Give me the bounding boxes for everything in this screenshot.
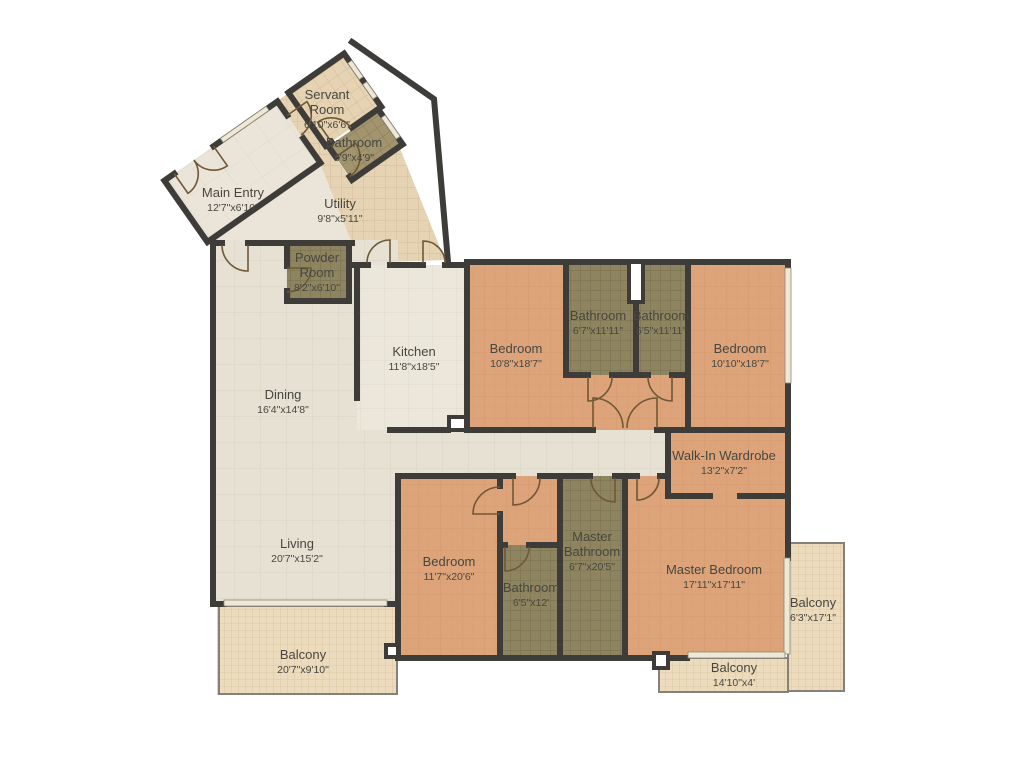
window-bedroom-2 (785, 268, 791, 383)
room-label-balcony-bottom: Balcony14'10"x4' (711, 660, 758, 689)
floor-plan-svg: ServantRoom6'10"x6'6"Bathroom6'9"x4'9"Ma… (0, 0, 1024, 768)
room-label-servant-room: ServantRoom6'10"x6'6" (304, 87, 350, 131)
room-label-dining: Dining16'4"x14'8" (257, 387, 309, 416)
room-label-bathroom-2: Bathroom6'5"x11'11" (633, 308, 689, 337)
column-notch-2 (654, 653, 668, 668)
column-notch-3 (386, 645, 398, 657)
room-floor-bed3-vestibule (500, 476, 560, 545)
column-notch-1 (449, 417, 466, 430)
room-label-powder-room: PowderRoom8'2"x6'10" (294, 250, 340, 294)
floor-plan-page: ServantRoom6'10"x6'6"Bathroom6'9"x4'9"Ma… (0, 0, 1024, 768)
room-floor-master-vestibule (625, 476, 668, 498)
room-floor-corridor (398, 430, 668, 476)
room-label-kitchen: Kitchen11'8"x18'5" (389, 344, 440, 373)
duct-shaft (629, 262, 643, 302)
room-label-bedroom-3: Bedroom11'7"x20'6" (423, 554, 476, 583)
room-label-balcony-left: Balcony20'7"x9'10" (277, 647, 329, 676)
room-label-bedroom-2: Bedroom10'10"x18'7" (711, 341, 769, 370)
slider-living-balcony (224, 600, 387, 606)
room-label-bathroom-1: Bathroom6'7"x11'11" (570, 308, 626, 337)
room-label-main-entry: Main Entry12'7"x6'10" (202, 185, 265, 214)
room-label-bedroom-1: Bedroom10'8"x18'7" (490, 341, 543, 370)
room-label-servant-bathroom: Bathroom6'9"x4'9" (326, 135, 382, 164)
slider-master-bottom (688, 652, 785, 658)
room-label-master-bathroom: MasterBathroom6'7"x20'5" (564, 529, 620, 573)
room-label-balcony-right: Balcony6'3"x17'1" (790, 595, 837, 624)
